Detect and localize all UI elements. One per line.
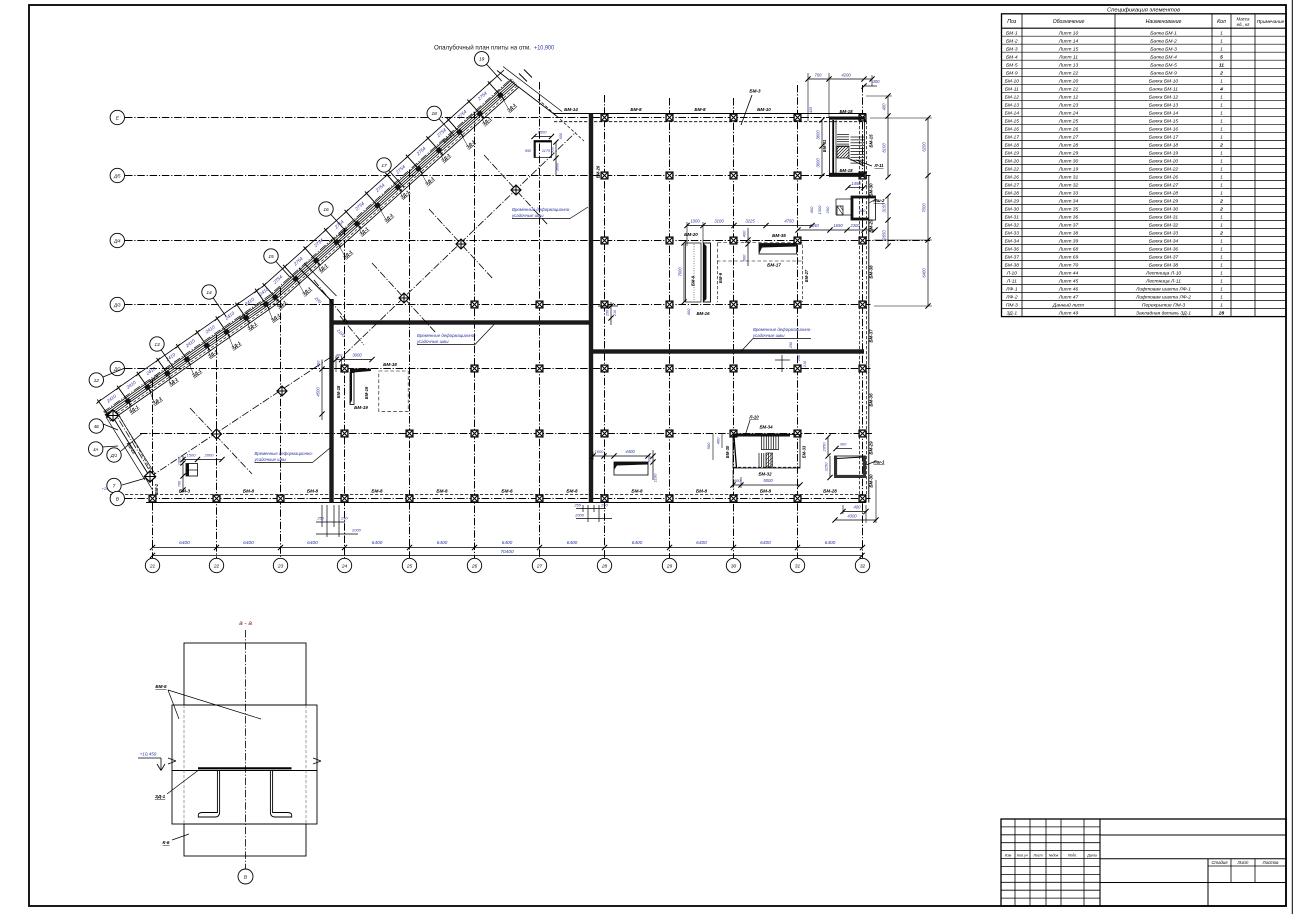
svg-text:400: 400: [734, 478, 741, 483]
svg-text:БМ-5: БМ-5: [155, 684, 167, 689]
svg-text:400: 400: [854, 505, 862, 510]
svg-text:1: 1: [1220, 287, 1223, 293]
svg-text:31: 31: [795, 563, 801, 569]
svg-text:Л-11: Л-11: [873, 163, 884, 168]
svg-text:18: 18: [432, 111, 438, 117]
svg-text:6200: 6200: [922, 142, 927, 152]
svg-text:Лист 19: Лист 19: [1058, 167, 1079, 173]
svg-text:Лист 47: Лист 47: [1058, 295, 1079, 301]
svg-text:БМ-14: БМ-14: [1005, 110, 1020, 116]
svg-text:2650: 2650: [882, 230, 887, 241]
svg-text:6400: 6400: [307, 540, 318, 546]
svg-text:Лист 28: Лист 28: [1058, 143, 1079, 149]
svg-text:БМ-8: БМ-8: [696, 488, 708, 493]
svg-text:700: 700: [815, 73, 823, 78]
svg-text:Кол: Кол: [1217, 19, 1226, 25]
svg-text:БМ-36: БМ-36: [1005, 247, 1020, 253]
svg-text:400: 400: [809, 206, 814, 213]
svg-text:4Б: 4Б: [94, 424, 99, 429]
svg-text:+10,450: +10,450: [140, 752, 157, 757]
svg-text:Балка БМ-19: Балка БМ-19: [1149, 151, 1179, 157]
svg-text:1: 1: [1220, 167, 1223, 173]
svg-text:БМ-9: БМ-9: [691, 275, 696, 286]
svg-text:Балка БМ-37: Балка БМ-37: [1149, 255, 1179, 261]
svg-text:Лист 24: Лист 24: [1058, 110, 1079, 116]
svg-text:Изм: Изм: [1005, 854, 1012, 858]
svg-text:БМ-18: БМ-18: [336, 385, 341, 398]
svg-text:Балка БМ-15: Балка БМ-15: [1149, 118, 1179, 124]
svg-text:БМ-28: БМ-28: [1005, 191, 1020, 197]
svg-text:БМ-31: БМ-31: [1005, 215, 1020, 221]
svg-text:4500: 4500: [316, 387, 321, 397]
svg-text:ПМ-3: ПМ-3: [1006, 303, 1018, 309]
svg-text:БМ-18: БМ-18: [383, 362, 397, 367]
svg-text:Лист 36: Лист 36: [1058, 215, 1079, 221]
svg-text:Спецификация элементов: Спецификация элементов: [1107, 8, 1180, 14]
svg-text:Лифтовая шахта ЛФ-1: Лифтовая шахта ЛФ-1: [1135, 287, 1191, 293]
svg-text:БМ-15: БМ-15: [869, 134, 874, 148]
svg-text:3225: 3225: [745, 219, 755, 224]
svg-text:Балка БМ-28: Балка БМ-28: [1149, 191, 1179, 197]
svg-text:250: 250: [340, 516, 348, 521]
svg-text:Временные деформационно-: Временные деформационно-: [417, 333, 476, 338]
svg-text:1: 1: [1220, 295, 1223, 301]
svg-text:БМ-32: БМ-32: [1005, 223, 1020, 229]
svg-text:400: 400: [873, 79, 881, 84]
svg-text:7600: 7600: [678, 267, 683, 277]
svg-text:БМ-30: БМ-30: [725, 445, 730, 458]
svg-text:БМ-27: БМ-27: [804, 269, 809, 282]
svg-text:6400: 6400: [502, 540, 513, 546]
svg-text:Балка БМ-4: Балка БМ-4: [1150, 54, 1177, 60]
svg-text:6400: 6400: [825, 540, 836, 546]
svg-text:1300: 1300: [817, 205, 822, 215]
svg-text:3600: 3600: [816, 130, 821, 140]
svg-text:усадочные швы: усадочные швы: [254, 457, 287, 462]
svg-text:1000: 1000: [595, 449, 605, 454]
svg-text:6400: 6400: [567, 540, 578, 546]
svg-text:Стадия: Стадия: [1211, 860, 1228, 865]
svg-text:Закладная деталь ЗД-1: Закладная деталь ЗД-1: [1136, 311, 1191, 317]
svg-text:1: 1: [1220, 38, 1223, 44]
svg-text:БМ-1: БМ-1: [1006, 30, 1018, 36]
svg-text:Балка БМ-30: Балка БМ-30: [1149, 207, 1179, 213]
svg-text:Балка БМ-16: Балка БМ-16: [1149, 126, 1179, 132]
svg-text:Лист 38: Лист 38: [1058, 231, 1079, 237]
svg-text:400: 400: [336, 353, 343, 358]
svg-text:4: 4: [1219, 86, 1223, 92]
svg-text:БМ-8: БМ-8: [631, 488, 643, 493]
svg-text:БМ-33: БМ-33: [802, 445, 807, 458]
svg-text:1500: 1500: [187, 453, 197, 458]
svg-text:Балка БМ-17: Балка БМ-17: [1149, 135, 1179, 141]
svg-text:600: 600: [559, 132, 563, 139]
svg-text:400: 400: [716, 437, 721, 444]
svg-text:БМ-18: БМ-18: [839, 168, 853, 173]
svg-text:4300: 4300: [847, 514, 857, 519]
svg-text:БМ-34: БМ-34: [1005, 239, 1020, 245]
svg-text:1: 1: [1220, 239, 1223, 245]
svg-text:17: 17: [381, 163, 387, 169]
svg-text:БМ-2: БМ-2: [154, 483, 159, 494]
svg-text:Л-11: Л-11: [1006, 279, 1017, 285]
svg-text:250: 250: [789, 341, 793, 349]
svg-text:14: 14: [206, 290, 212, 296]
svg-text:Балка БМ-10: Балка БМ-10: [1149, 78, 1179, 84]
svg-text:1: 1: [1220, 78, 1223, 84]
svg-text:БМ-11: БМ-11: [1005, 86, 1019, 92]
svg-text:1: 1: [1220, 191, 1223, 197]
svg-text:Лист 49: Лист 49: [1058, 311, 1079, 317]
svg-text:Лист 21: Лист 21: [1058, 86, 1079, 92]
svg-text:БМ-33: БМ-33: [1005, 231, 1020, 237]
svg-text:2000: 2000: [574, 513, 585, 518]
svg-text:Лист: Лист: [1236, 860, 1248, 865]
svg-text:Лестница Л-10: Лестница Л-10: [1145, 271, 1182, 277]
svg-text:БМ-4: БМ-4: [1006, 54, 1018, 60]
svg-text:Обозначение: Обозначение: [1053, 19, 1085, 25]
svg-text:6400: 6400: [696, 540, 707, 546]
svg-text:БМ-26: БМ-26: [1005, 175, 1020, 181]
svg-text:2650: 2650: [822, 442, 827, 453]
svg-text:БМ-34: БМ-34: [759, 425, 773, 430]
svg-text:а - а: а - а: [239, 620, 252, 627]
svg-text:Балка БМ-22: Балка БМ-22: [1149, 167, 1179, 173]
svg-text:Балка БМ-14: Балка БМ-14: [1149, 110, 1179, 116]
svg-text:2: 2: [1219, 207, 1223, 213]
svg-text:6400: 6400: [179, 540, 190, 546]
svg-text:Временные деформационно-: Временные деформационно-: [512, 207, 571, 212]
svg-text:БМ-30: БМ-30: [869, 183, 874, 197]
svg-text:1: 1: [1220, 263, 1223, 269]
svg-text:1: 1: [1220, 126, 1223, 132]
svg-text:Лист 30: Лист 30: [1058, 159, 1079, 165]
svg-text:Лист 35: Лист 35: [1058, 207, 1079, 213]
svg-text:6400: 6400: [437, 540, 448, 546]
svg-text:Балка БМ-13: Балка БМ-13: [1149, 102, 1179, 108]
svg-text:1: 1: [1220, 110, 1223, 116]
svg-text:1000: 1000: [690, 219, 700, 224]
svg-text:Лист 26: Лист 26: [1058, 126, 1079, 132]
svg-text:БМ-12: БМ-12: [1005, 94, 1020, 100]
svg-text:250: 250: [600, 503, 608, 508]
svg-text:1: 1: [1220, 118, 1223, 124]
svg-text:Д/1: Д/1: [110, 453, 117, 458]
svg-text:Лист 70: Лист 70: [1058, 263, 1079, 269]
svg-text:БМ-19: БМ-19: [354, 405, 368, 410]
svg-text:425: 425: [809, 106, 813, 113]
svg-text:БМ-26: БМ-26: [596, 165, 601, 178]
svg-text:6400: 6400: [922, 268, 927, 278]
svg-text:3100: 3100: [714, 219, 724, 224]
svg-text:1: 1: [1220, 46, 1223, 52]
svg-text:БМ-17: БМ-17: [767, 263, 781, 268]
svg-text:Опалубочный план плиты на отм.: Опалубочный план плиты на отм.: [434, 44, 531, 52]
svg-text:БМ-35: БМ-35: [772, 233, 786, 238]
svg-text:БМ-8: БМ-8: [436, 488, 448, 493]
svg-text:1: 1: [1220, 151, 1223, 157]
svg-text:БМ-18: БМ-18: [1005, 143, 1020, 149]
svg-text:210: 210: [613, 309, 617, 317]
svg-text:Балка БМ-32: Балка БМ-32: [1149, 223, 1179, 229]
svg-text:Лш-1: Лш-1: [873, 460, 885, 465]
svg-text:Балка БМ-27: Балка БМ-27: [1149, 183, 1179, 189]
svg-text:Балка БМ-1: Балка БМ-1: [1150, 30, 1177, 36]
svg-text:1: 1: [1220, 175, 1223, 181]
svg-text:ЗД-1: ЗД-1: [155, 794, 166, 799]
svg-text:2: 2: [1219, 70, 1223, 76]
svg-text:ед., кг: ед., кг: [1237, 22, 1251, 27]
svg-text:30: 30: [731, 563, 737, 569]
svg-text:Лист 32: Лист 32: [1058, 183, 1079, 189]
svg-text:Листов: Листов: [1262, 860, 1279, 865]
svg-text:21: 21: [149, 563, 156, 569]
svg-text:Балка БМ-26: Балка БМ-26: [1149, 175, 1179, 181]
svg-text:2: 2: [1219, 231, 1223, 237]
svg-text:БМ-8: БМ-8: [371, 488, 383, 493]
svg-text:1500: 1500: [538, 130, 548, 135]
svg-text:28: 28: [601, 563, 608, 569]
svg-text:Лестница Л-11: Лестница Л-11: [1145, 279, 1181, 285]
svg-text:БМ-8: БМ-8: [566, 488, 578, 493]
svg-text:Лист 46: Лист 46: [1058, 287, 1079, 293]
svg-text:ЛФ-1: ЛФ-1: [1005, 287, 1018, 293]
svg-text:Примечание: Примечание: [1257, 19, 1285, 25]
svg-text:2: 2: [1219, 143, 1223, 149]
svg-text:6400: 6400: [372, 540, 383, 546]
svg-text:БМ-8: БМ-8: [501, 488, 513, 493]
svg-text:Кол.уч: Кол.уч: [1017, 854, 1028, 858]
svg-text:Данный лист: Данный лист: [1052, 302, 1084, 309]
svg-text:Д/4: Д/4: [113, 238, 121, 243]
svg-text:БМ-19: БМ-19: [364, 386, 369, 399]
svg-text:БМ-27: БМ-27: [1005, 183, 1020, 189]
svg-text:5000: 5000: [763, 478, 773, 483]
svg-text:4400: 4400: [625, 449, 635, 454]
svg-text:24: 24: [341, 563, 348, 569]
svg-text:БМ-13: БМ-13: [1005, 102, 1020, 108]
svg-text:1: 1: [1220, 183, 1223, 189]
svg-text:400: 400: [686, 308, 691, 315]
svg-text:1: 1: [1220, 247, 1223, 253]
svg-text:БМ-16: БМ-16: [696, 311, 710, 316]
svg-text:3150: 3150: [882, 203, 887, 213]
svg-text:250: 250: [606, 309, 610, 317]
svg-text:25: 25: [406, 563, 413, 569]
svg-text:Балка БМ-20: Балка БМ-20: [1149, 159, 1179, 165]
svg-text:БМ-38: БМ-38: [1005, 263, 1020, 269]
svg-text:3150: 3150: [824, 462, 829, 472]
svg-text:БМ-17: БМ-17: [1005, 135, 1020, 141]
svg-text:Лист 68: Лист 68: [1058, 247, 1079, 253]
svg-text:950: 950: [525, 149, 532, 153]
svg-text:700: 700: [178, 480, 182, 487]
svg-text:Балка БМ-38: Балка БМ-38: [1149, 263, 1179, 269]
svg-text:6400: 6400: [760, 540, 771, 546]
svg-text:БМ-8: БМ-8: [630, 107, 642, 112]
svg-text:К-6: К-6: [163, 840, 170, 845]
svg-text:Лист 14: Лист 14: [1058, 38, 1079, 44]
svg-text:Лист 15: Лист 15: [1058, 46, 1079, 52]
svg-text:Лист 20: Лист 20: [1058, 78, 1079, 84]
svg-text:1: 1: [1220, 135, 1223, 141]
svg-text:300: 300: [859, 208, 866, 213]
svg-text:Лист 27: Лист 27: [1058, 135, 1079, 141]
svg-text:Лист 37: Лист 37: [1058, 223, 1079, 229]
svg-text:500: 500: [706, 442, 711, 449]
svg-text:1: 1: [1220, 279, 1223, 285]
svg-text:7000: 7000: [922, 203, 927, 213]
svg-text:БМ-37: БМ-37: [1005, 255, 1020, 261]
svg-text:Балка БМ-34: Балка БМ-34: [1149, 239, 1179, 245]
svg-text:БМ-29: БМ-29: [1005, 199, 1020, 205]
svg-text:Лист: Лист: [1032, 854, 1042, 858]
svg-text:28: 28: [1218, 311, 1225, 317]
svg-text:БМ-29: БМ-29: [869, 441, 874, 455]
svg-text:Лш-2: Лш-2: [873, 198, 885, 203]
svg-text:Лист 31: Лист 31: [1058, 175, 1079, 181]
svg-text:Балка БМ-18: Балка БМ-18: [1149, 143, 1179, 149]
svg-text:Л-10: Л-10: [1006, 271, 1018, 277]
svg-text:Балка БМ-2: Балка БМ-2: [1150, 38, 1177, 44]
svg-text:3600: 3600: [556, 162, 560, 171]
svg-text:950: 950: [551, 146, 555, 153]
svg-text:16: 16: [323, 207, 329, 213]
svg-text:6400: 6400: [243, 540, 254, 546]
svg-text:БМ-30: БМ-30: [1005, 207, 1020, 213]
svg-text:32: 32: [860, 563, 866, 569]
svg-text:4А: 4А: [93, 447, 98, 452]
svg-text:Лист 34: Лист 34: [1058, 199, 1079, 205]
svg-text:Балка БМ-36: Балка БМ-36: [1149, 247, 1179, 253]
svg-text:Дата: Дата: [1086, 854, 1096, 858]
svg-text:6400: 6400: [632, 540, 643, 546]
svg-text:1: 1: [1220, 94, 1223, 100]
svg-text:БМ-9: БМ-9: [718, 272, 723, 283]
svg-text:1: 1: [1220, 215, 1223, 221]
svg-text:БМ-19: БМ-19: [1005, 151, 1020, 157]
svg-text:БМ-20: БМ-20: [1005, 159, 1020, 165]
svg-text:БМ-8: БМ-8: [760, 488, 772, 493]
svg-text:БМ-18: БМ-18: [839, 109, 853, 114]
svg-text:1450: 1450: [851, 181, 861, 186]
svg-text:БМ-29: БМ-29: [869, 219, 874, 233]
svg-text:26: 26: [471, 563, 478, 569]
svg-text:27: 27: [536, 563, 543, 569]
svg-text:Балка БМ-29: Балка БМ-29: [1149, 199, 1179, 205]
svg-text:БМ-9: БМ-9: [1006, 70, 1018, 76]
svg-text:усадочные швы: усадочные швы: [752, 333, 785, 338]
svg-text:Временные деформационно-: Временные деформационно-: [255, 451, 314, 456]
svg-text:2300: 2300: [849, 223, 860, 228]
svg-text:400: 400: [742, 230, 747, 237]
svg-text:4750: 4750: [784, 219, 794, 224]
svg-text:1000: 1000: [178, 456, 182, 465]
svg-text:210: 210: [803, 360, 807, 368]
svg-text:250: 250: [573, 503, 581, 508]
svg-text:3000: 3000: [352, 353, 362, 358]
svg-text:Лист 44: Лист 44: [1058, 271, 1079, 277]
svg-text:1: 1: [1220, 102, 1223, 108]
svg-text:Масса: Масса: [1237, 17, 1251, 22]
svg-text:12: 12: [94, 378, 100, 384]
svg-text:Подп.: Подп.: [1068, 854, 1078, 858]
svg-text:БМ-38: БМ-38: [869, 265, 874, 279]
svg-text:БМ-37: БМ-37: [869, 329, 874, 343]
svg-text:БМ-14: БМ-14: [564, 107, 578, 112]
svg-text:Лист 10: Лист 10: [1058, 30, 1079, 36]
svg-text:Лифтовая шахта ЛФ-2: Лифтовая шахта ЛФ-2: [1135, 295, 1191, 301]
svg-text:2600: 2600: [204, 453, 215, 458]
svg-text:1: 1: [1220, 159, 1223, 165]
svg-text:ЗД-1: ЗД-1: [1006, 311, 1017, 317]
svg-text:усадочные швы: усадочные швы: [511, 213, 544, 218]
svg-text:БМ-36: БМ-36: [869, 393, 874, 407]
svg-text:БМ-30: БМ-30: [869, 474, 874, 488]
svg-text:усадочные швы: усадочные швы: [416, 339, 449, 344]
svg-text:№док: №док: [1049, 854, 1059, 858]
svg-text:11: 11: [1219, 62, 1224, 68]
svg-text:БМ-22: БМ-22: [1005, 167, 1020, 173]
svg-text:Д/5: Д/5: [113, 173, 121, 178]
svg-text:ЛФ-2: ЛФ-2: [1005, 295, 1018, 301]
svg-text:1: 1: [1220, 255, 1223, 261]
svg-text:Балка БМ-3: Балка БМ-3: [1150, 46, 1177, 52]
svg-text:1100: 1100: [653, 473, 658, 482]
svg-text:400: 400: [882, 103, 887, 111]
svg-text:13: 13: [154, 342, 160, 348]
svg-text:22: 22: [213, 563, 220, 569]
svg-text:БМ-8: БМ-8: [694, 107, 706, 112]
svg-text:Лист 13: Лист 13: [1058, 62, 1079, 68]
svg-text:Поз: Поз: [1007, 19, 1017, 25]
svg-text:Перекрытие ПМ-3: Перекрытие ПМ-3: [1142, 303, 1185, 309]
svg-text:19: 19: [479, 57, 485, 63]
svg-text:Лист 23: Лист 23: [1058, 102, 1079, 108]
svg-text:600: 600: [647, 455, 652, 462]
svg-text:600: 600: [742, 254, 747, 261]
svg-text:Балка БМ-31: Балка БМ-31: [1149, 215, 1179, 221]
svg-text:БМ-16: БМ-16: [1005, 126, 1020, 132]
svg-text:Л-10: Л-10: [748, 415, 759, 420]
svg-text:Лист 69: Лист 69: [1058, 255, 1079, 261]
svg-text:2: 2: [1219, 199, 1223, 205]
svg-text:БМ-2: БМ-2: [1006, 38, 1018, 44]
svg-text:БМ-28: БМ-28: [823, 488, 837, 493]
svg-text:+10,900: +10,900: [534, 45, 554, 52]
svg-text:300: 300: [840, 442, 847, 447]
svg-text:1: 1: [1220, 223, 1223, 229]
svg-text:1175: 1175: [542, 149, 551, 153]
svg-text:200: 200: [825, 206, 830, 214]
svg-text:Балка БМ-11: Балка БМ-11: [1149, 86, 1178, 92]
svg-text:БМ-10: БМ-10: [757, 107, 771, 112]
svg-text:Лист 12: Лист 12: [1058, 94, 1079, 100]
svg-text:Лист 45: Лист 45: [1058, 279, 1079, 285]
svg-text:БМ-20: БМ-20: [684, 232, 698, 237]
svg-text:29: 29: [666, 563, 673, 569]
svg-text:БМ-10: БМ-10: [1005, 78, 1020, 84]
svg-text:15: 15: [268, 254, 274, 260]
svg-text:3600: 3600: [816, 158, 821, 168]
svg-text:БМ-3: БМ-3: [749, 89, 761, 94]
svg-text:БМ-3: БМ-3: [1006, 46, 1018, 52]
svg-text:Балка БМ-33: Балка БМ-33: [1149, 231, 1179, 237]
svg-text:БМ-15: БМ-15: [1005, 118, 1020, 124]
svg-text:БМ-8: БМ-8: [243, 488, 255, 493]
svg-text:70400: 70400: [500, 549, 514, 555]
svg-text:2000: 2000: [351, 528, 362, 533]
